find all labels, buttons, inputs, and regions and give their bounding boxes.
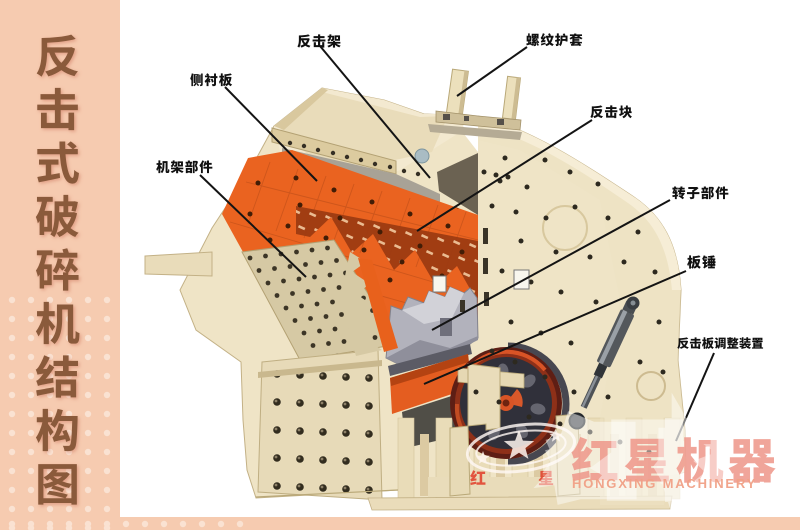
svg-text:HONGXING MACHINERY: HONGXING MACHINERY	[572, 476, 757, 491]
